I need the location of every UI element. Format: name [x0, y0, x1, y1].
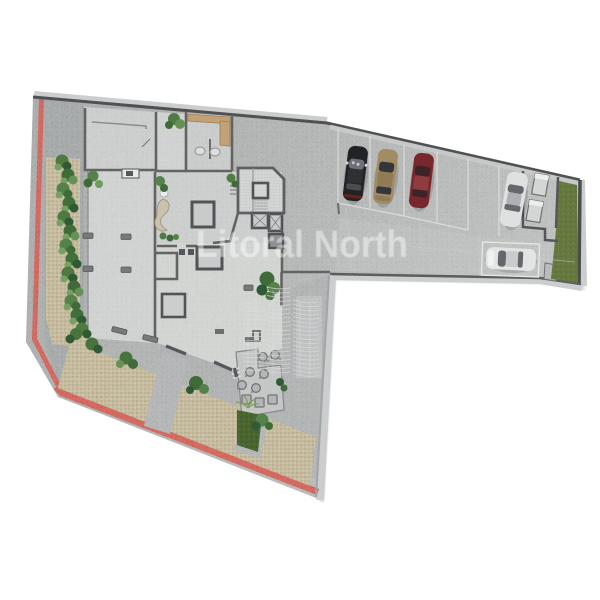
svg-text:Litoral North: Litoral North: [196, 224, 408, 266]
